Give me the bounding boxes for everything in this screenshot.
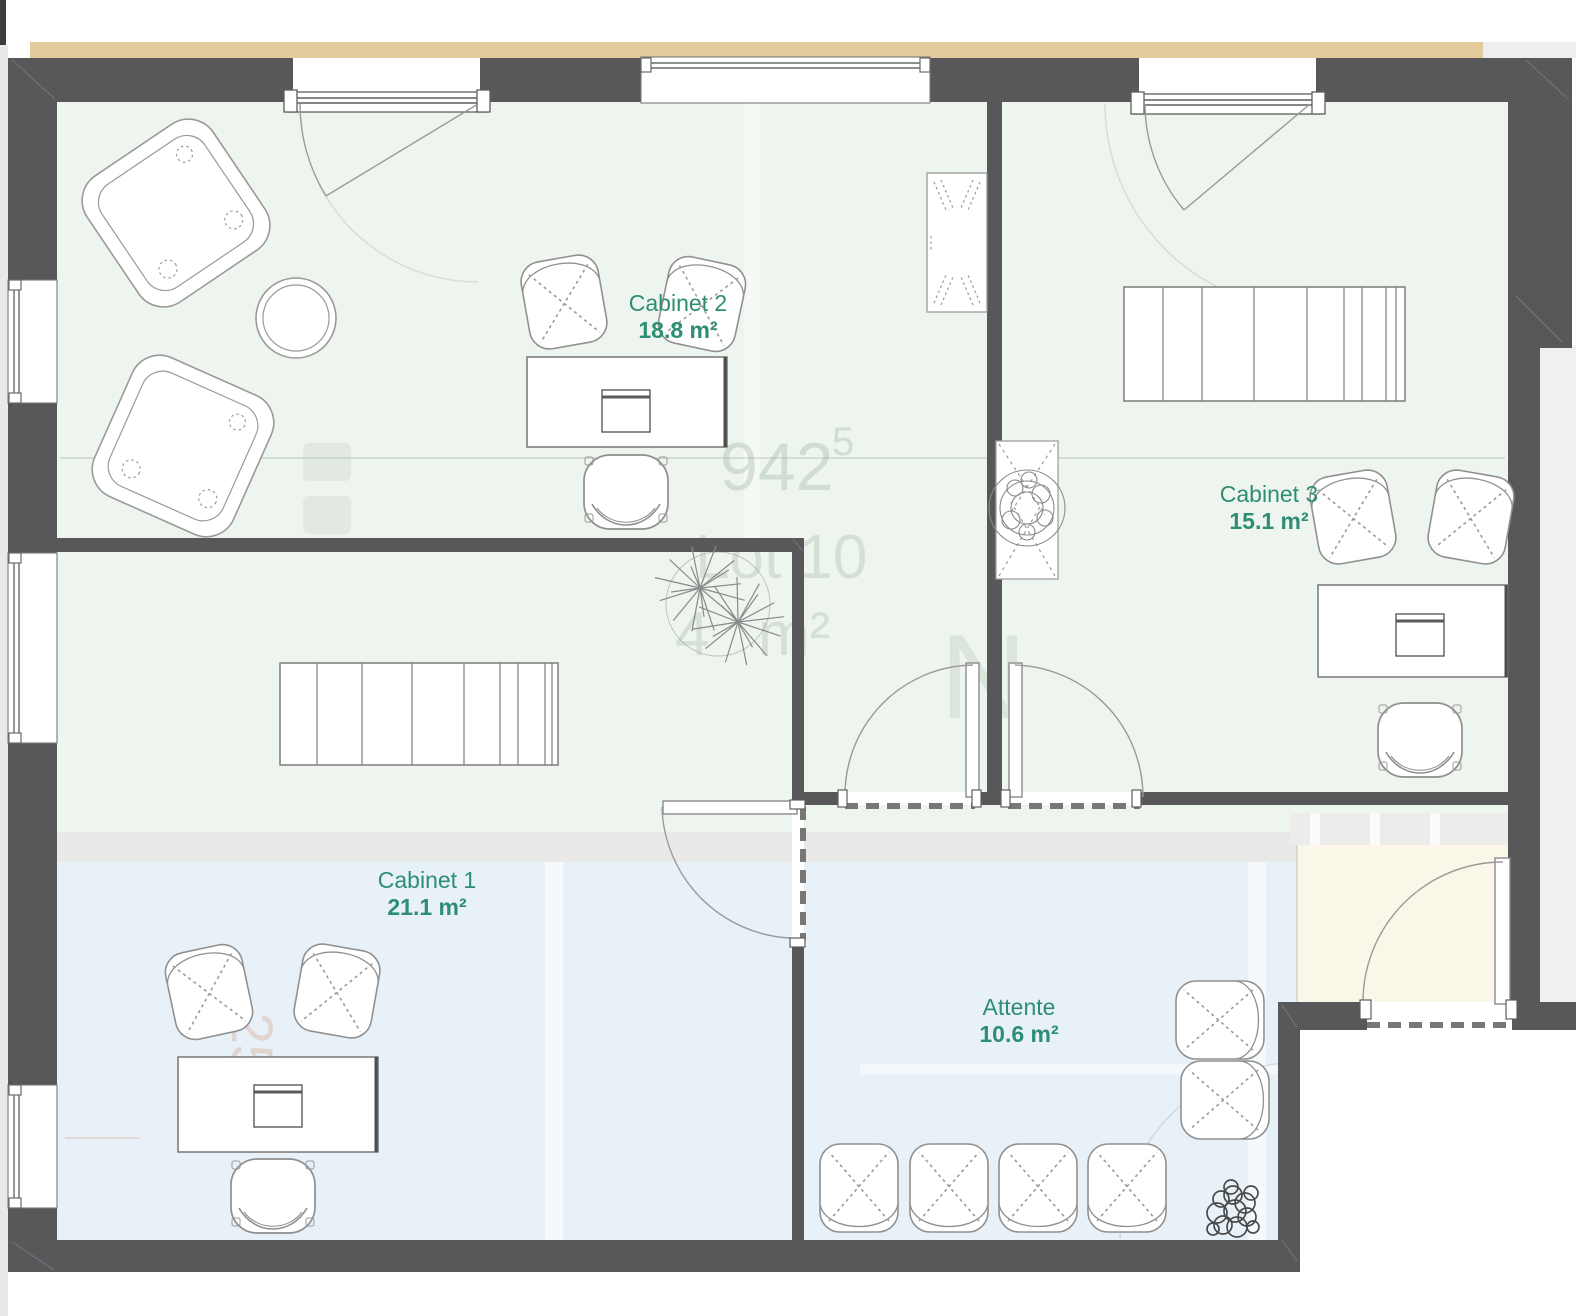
wall-bottom — [8, 1240, 1300, 1272]
office-chair — [231, 1159, 315, 1233]
desk — [178, 1057, 378, 1152]
room-area: 15.1 m² — [1220, 508, 1318, 535]
round-side-table — [256, 278, 336, 358]
wall-right — [1508, 100, 1540, 1030]
room-name: Attente — [979, 994, 1058, 1021]
window-left-1 — [8, 280, 57, 403]
floor-plan-canvas: 942 5 Lot 10 4 m² N 257 — [0, 0, 1576, 1316]
room-name: Cabinet 1 — [378, 867, 476, 894]
waiting-chair — [1088, 1144, 1166, 1232]
waiting-chair — [999, 1144, 1077, 1232]
window-left-3 — [8, 1085, 57, 1208]
room-label-cabinet-1: Cabinet 1 21.1 m² — [378, 867, 476, 921]
visitor-chair — [291, 941, 383, 1041]
visitor-chair — [1425, 467, 1517, 567]
office-chair — [1378, 703, 1462, 777]
room-label-cabinet-3: Cabinet 3 15.1 m² — [1220, 481, 1318, 535]
office-chair — [584, 455, 668, 529]
monitor — [1396, 614, 1444, 656]
wall-partition-v1-lower — [792, 940, 804, 1240]
room-area: 18.8 m² — [629, 317, 727, 344]
room-name: Cabinet 3 — [1220, 481, 1318, 508]
room-area: 10.6 m² — [979, 1021, 1058, 1048]
desk — [1318, 585, 1508, 677]
wall-partition-h2-c — [1135, 792, 1508, 805]
room-area: 21.1 m² — [378, 894, 476, 921]
waiting-chair — [1181, 1061, 1269, 1139]
window-top — [641, 57, 930, 103]
shelf-cabinet — [280, 663, 558, 765]
wall-partition-v1-upper — [792, 538, 804, 807]
underlay-dimension-sup: 5 — [832, 420, 854, 464]
wall-bottom-right — [1278, 1002, 1300, 1240]
room-name: Cabinet 2 — [629, 290, 727, 317]
shelf-cabinet — [1124, 287, 1405, 401]
room-label-cabinet-2: Cabinet 2 18.8 m² — [629, 290, 727, 344]
potted-plant — [989, 441, 1065, 579]
visitor-chair — [518, 252, 610, 352]
waiting-chair — [910, 1144, 988, 1232]
underlay-area-fragment-left: 4 — [675, 600, 709, 669]
wall-right-top-extra — [1540, 58, 1572, 348]
visitor-chair — [1307, 467, 1399, 567]
monitor — [254, 1085, 302, 1127]
underlay-dimension-text: 942 — [720, 429, 833, 505]
side-table — [927, 173, 987, 312]
floor-plan-drawing: 942 5 Lot 10 4 m² N 257 — [0, 0, 1576, 1316]
waiting-chair — [1176, 981, 1264, 1059]
waiting-chair — [820, 1144, 898, 1232]
desk — [527, 357, 727, 447]
underlay-lot-text: Lot 10 — [695, 523, 867, 592]
room-label-attente: Attente 10.6 m² — [979, 994, 1058, 1048]
window-left-2 — [8, 553, 57, 743]
monitor — [602, 390, 650, 432]
